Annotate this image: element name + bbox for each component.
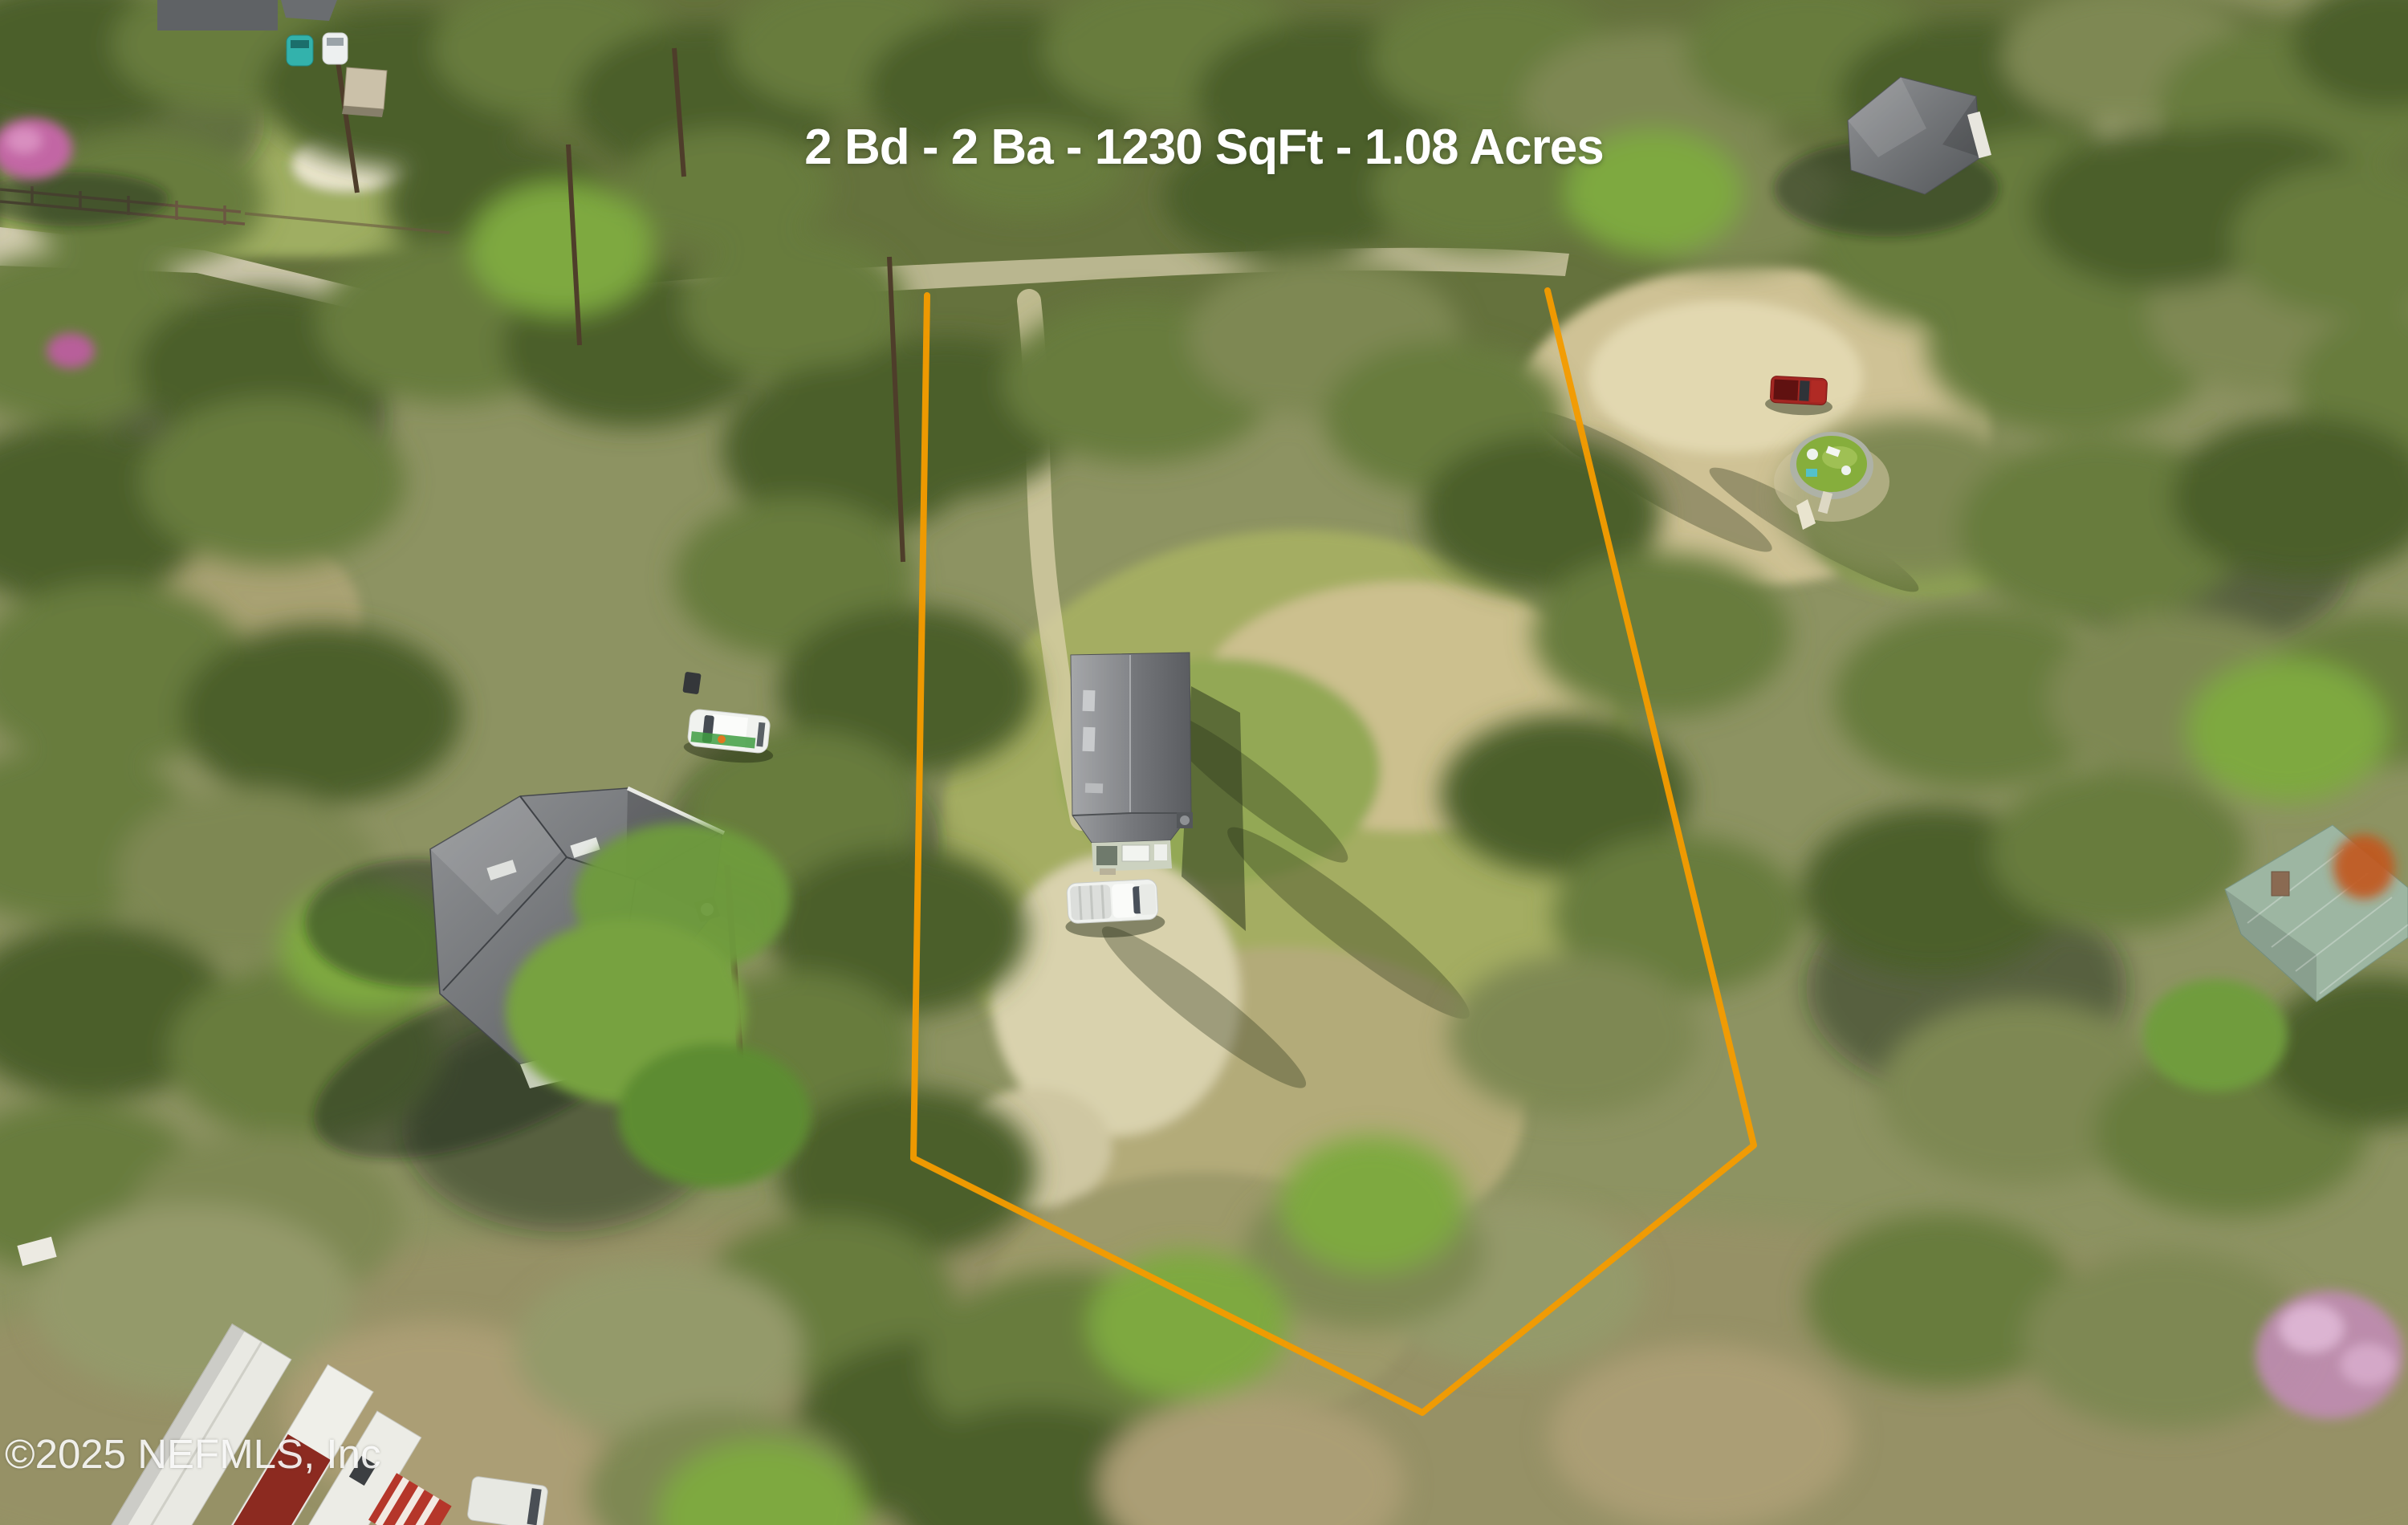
subject-white-pickup — [1064, 879, 1165, 940]
top-edge-house-roof — [157, 0, 278, 31]
white-car — [323, 33, 348, 64]
window — [1154, 844, 1167, 860]
beige-shed — [344, 67, 387, 109]
teal-car — [287, 35, 313, 66]
property-stats-overlay: 2 Bd - 2 Ba - 1230 SqFt - 1.08 Acres — [804, 119, 1603, 176]
aerial-photo: 2 Bd - 2 Ba - 1230 SqFt - 1.08 Acres ©20… — [0, 0, 2408, 1525]
porch — [1096, 846, 1117, 865]
chimney — [2272, 872, 2289, 896]
aerial-photo-scene — [0, 0, 2408, 1525]
skylight — [1083, 690, 1096, 712]
roof-vent — [1085, 783, 1103, 794]
trash-bin — [682, 672, 701, 695]
mls-watermark: ©2025 NEFMLS, Inc — [5, 1430, 380, 1478]
pink-magnolia-tree — [2255, 1291, 2403, 1419]
window — [1122, 845, 1149, 861]
pool-float — [1807, 449, 1818, 460]
red-pickup-truck — [1764, 376, 1833, 417]
skylight — [1082, 727, 1095, 752]
